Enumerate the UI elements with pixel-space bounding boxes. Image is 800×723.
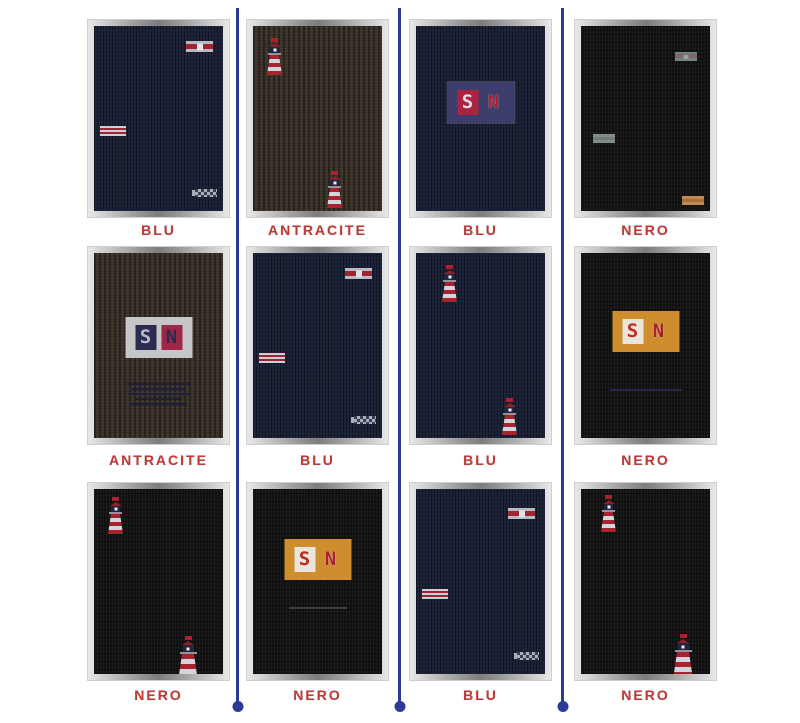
sn-logo: S N (612, 311, 679, 352)
logo-letter-n: N (161, 325, 182, 350)
fabric-blu (253, 253, 382, 438)
swatch-row3-col2-nero[interactable]: S N (247, 483, 388, 680)
swatch-label: BLU (410, 687, 551, 703)
swatch-label: NERO (247, 687, 388, 703)
swatch-row2-col1-antracite[interactable]: S N (88, 247, 229, 444)
logo-letter-n: N (648, 319, 669, 344)
swatch-row1-col1-blu[interactable] (88, 20, 229, 217)
fabric-nero: S N (253, 489, 382, 674)
swatch-label: ANTRACITE (247, 222, 388, 238)
checker-band-icon (354, 416, 376, 424)
logo-letter-n: N (320, 547, 341, 572)
striped-flag-icon (345, 268, 372, 279)
swatch-label: NERO (575, 687, 716, 703)
swatch-row2-col4-nero[interactable]: S N (575, 247, 716, 444)
colorway-grid: BLU ANTRACITE S N BLU NERO (0, 0, 800, 723)
logo-letter-s: S (622, 319, 643, 344)
swatch-row1-col3-blu[interactable]: S N (410, 20, 551, 217)
swatch-label: BLU (88, 222, 229, 238)
striped-bar-icon (422, 589, 448, 599)
fabric-blu: S N (416, 26, 545, 211)
logo-letter-s: S (457, 90, 478, 115)
column-divider-3 (561, 8, 564, 702)
fabric-nero (94, 489, 223, 674)
lighthouse-icon (327, 171, 342, 208)
fabric-blu (94, 26, 223, 211)
striped-bar-icon (100, 126, 126, 136)
woven-text-lines (127, 383, 191, 408)
sn-logo: S N (284, 539, 351, 580)
fabric-antracite (253, 26, 382, 211)
lighthouse-icon (502, 398, 517, 435)
swatch-label: NERO (88, 687, 229, 703)
lighthouse-icon (442, 265, 457, 302)
striped-bar-icon (259, 353, 285, 363)
lighthouse-icon (178, 636, 198, 674)
fabric-nero: S N (581, 253, 710, 438)
swatch-label: BLU (410, 452, 551, 468)
lighthouse-icon (108, 497, 123, 534)
sn-logo: S N (125, 317, 192, 358)
lighthouse-icon (267, 38, 282, 75)
muted-flag-icon (675, 52, 697, 61)
swatch-row1-col2-antracite[interactable] (247, 20, 388, 217)
navy-underline (610, 389, 682, 391)
muted-bar-icon (593, 134, 615, 143)
gray-underline (289, 607, 347, 609)
swatch-label: NERO (575, 222, 716, 238)
swatch-row1-col4-nero[interactable] (575, 20, 716, 217)
checker-band-icon (517, 652, 539, 660)
sn-logo: S N (447, 82, 514, 123)
fabric-nero (581, 26, 710, 211)
logo-letter-s: S (135, 325, 156, 350)
swatch-label: BLU (410, 222, 551, 238)
swatch-label: ANTRACITE (88, 452, 229, 468)
swatch-row3-col1-nero[interactable] (88, 483, 229, 680)
logo-letter-n: N (483, 90, 504, 115)
swatch-label: NERO (575, 452, 716, 468)
checker-band-icon (195, 189, 217, 197)
striped-flag-icon (186, 41, 213, 52)
fabric-blu (416, 489, 545, 674)
fabric-nero (581, 489, 710, 674)
lighthouse-icon (673, 634, 693, 674)
column-divider-2 (398, 8, 401, 702)
striped-flag-icon (508, 508, 535, 519)
swatch-row3-col4-nero[interactable] (575, 483, 716, 680)
fabric-antracite: S N (94, 253, 223, 438)
orange-bar-icon (682, 196, 704, 205)
swatch-row2-col3-blu[interactable] (410, 247, 551, 444)
logo-letter-s: S (294, 547, 315, 572)
fabric-blu (416, 253, 545, 438)
swatch-label: BLU (247, 452, 388, 468)
column-divider-1 (236, 8, 239, 702)
swatch-row2-col2-blu[interactable] (247, 247, 388, 444)
lighthouse-icon (601, 495, 616, 532)
swatch-row3-col3-blu[interactable] (410, 483, 551, 680)
